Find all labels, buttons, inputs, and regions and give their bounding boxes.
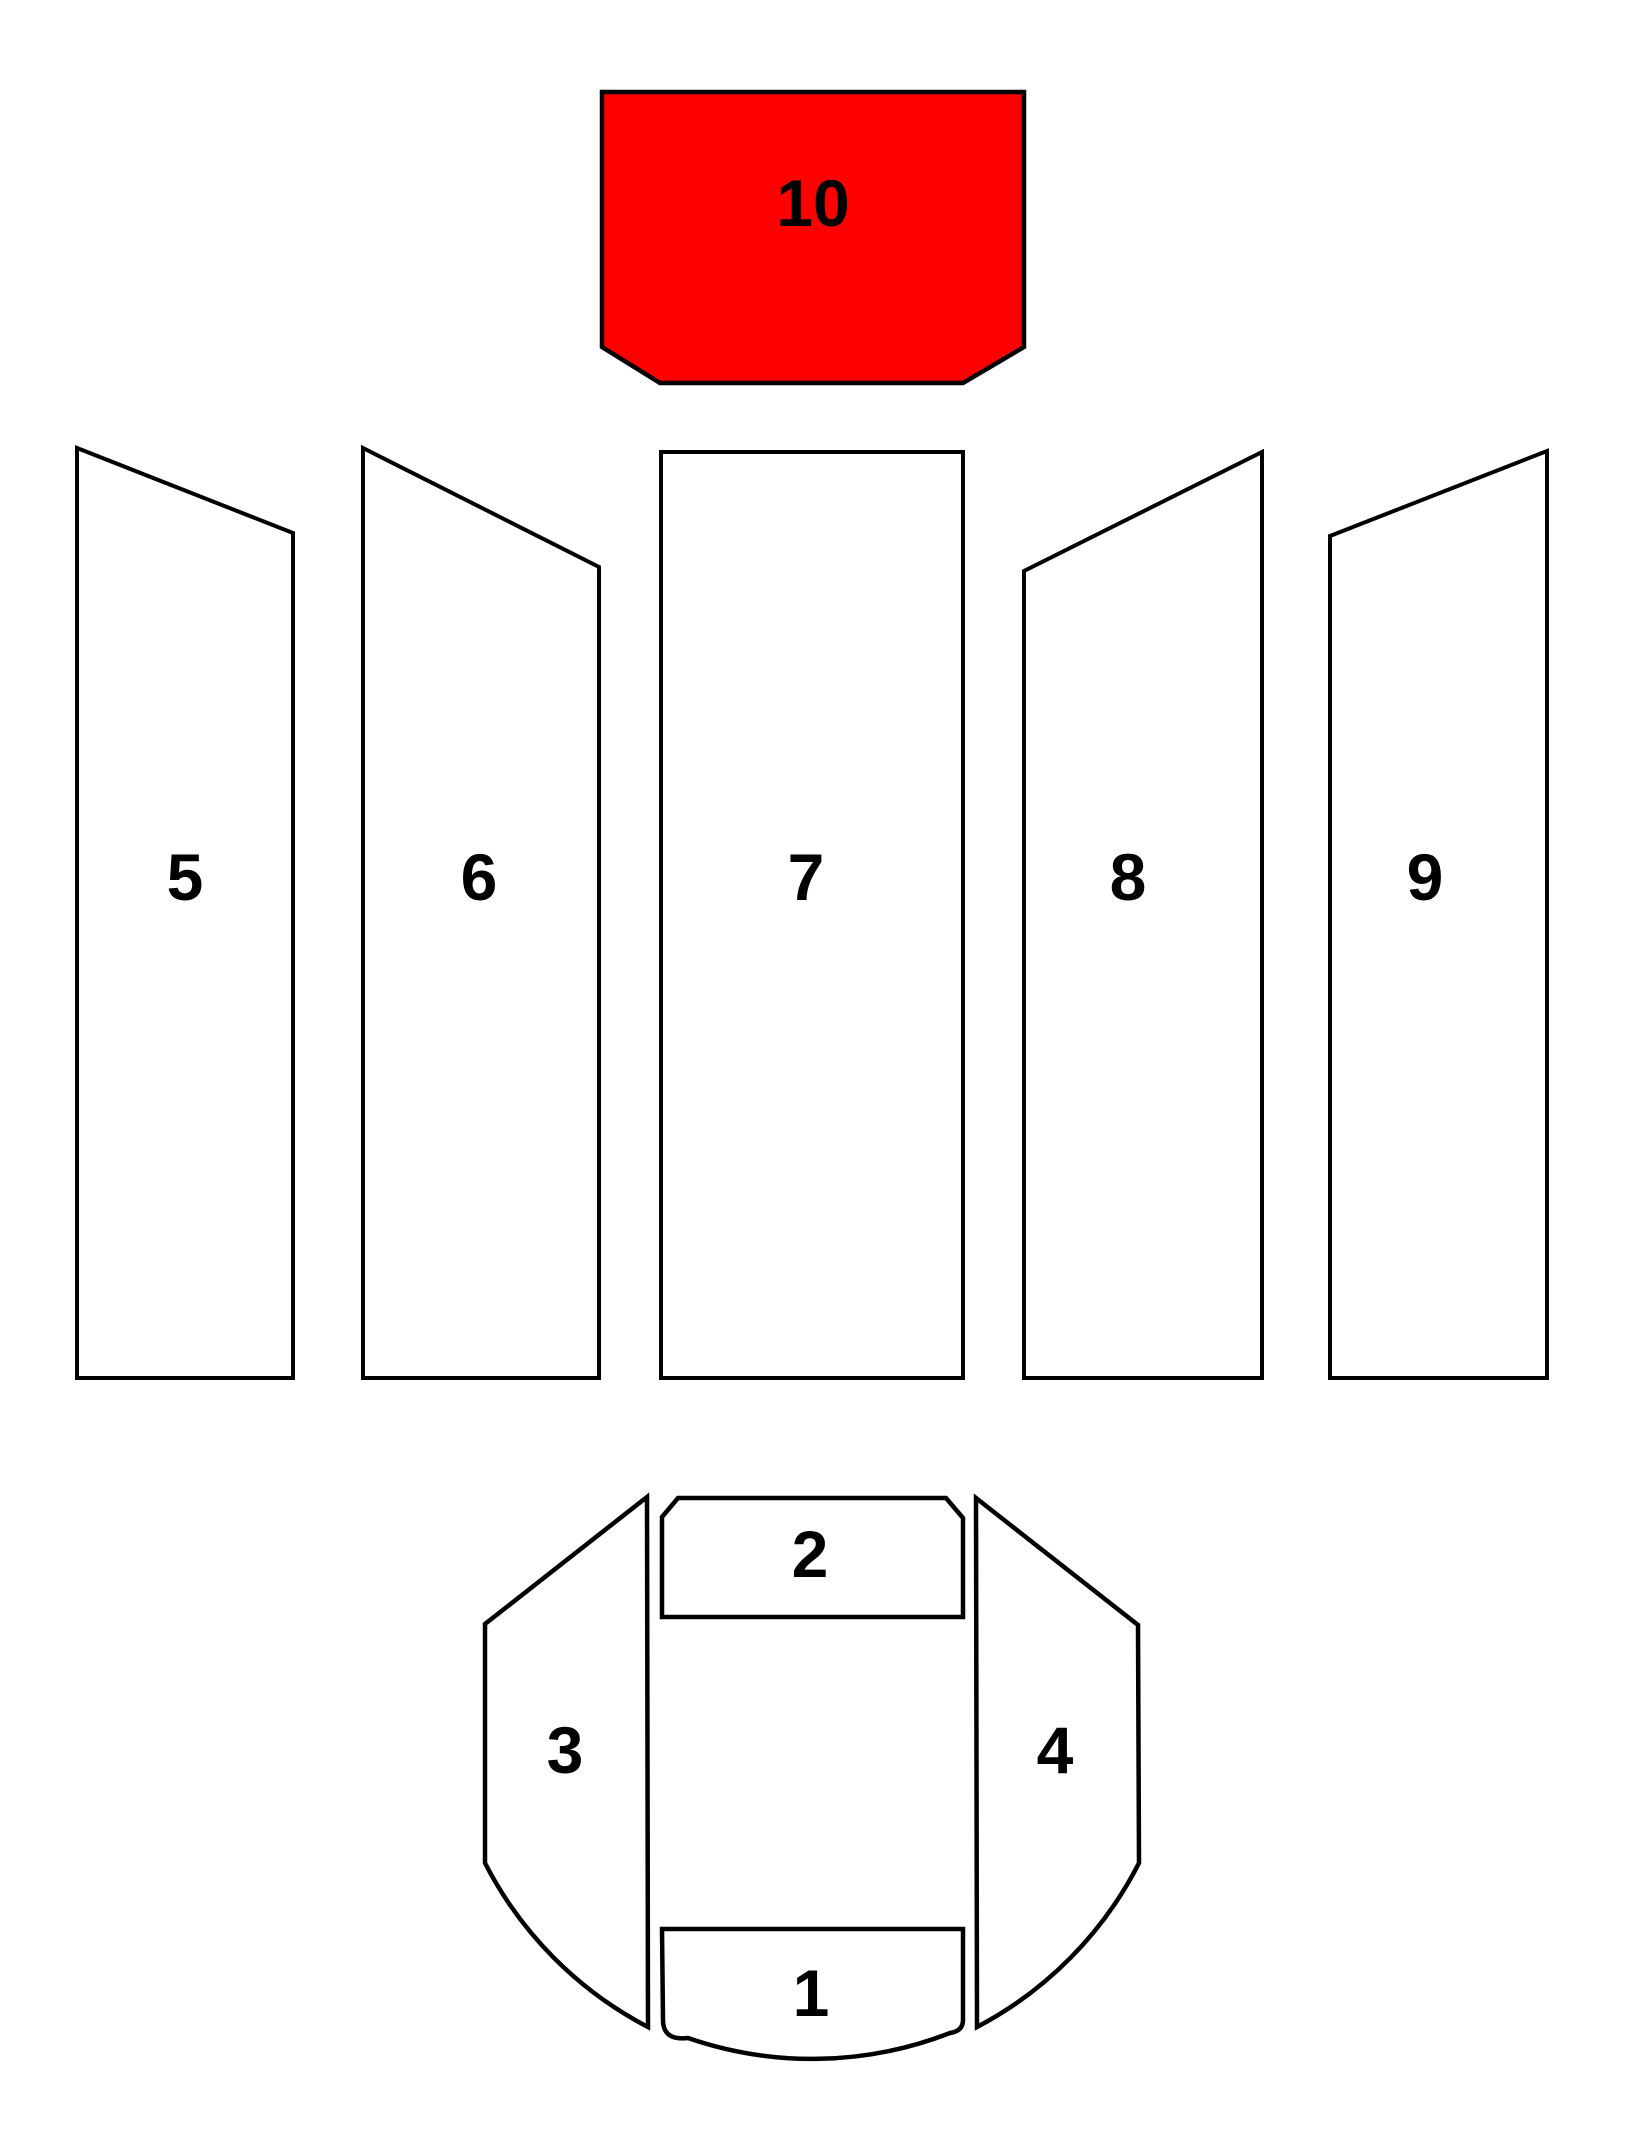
part-2[interactable]: 2 — [662, 1498, 963, 1617]
part-5[interactable]: 5 — [77, 448, 293, 1378]
part-1-label: 1 — [793, 1956, 830, 2030]
part-7-shape[interactable] — [661, 452, 963, 1378]
part-5-label: 5 — [167, 840, 204, 914]
part-8-label: 8 — [1110, 840, 1147, 914]
part-3-label: 3 — [547, 1713, 584, 1787]
part-1[interactable]: 1 — [662, 1929, 963, 2059]
part-8[interactable]: 8 — [1024, 452, 1262, 1378]
part-8-shape[interactable] — [1024, 452, 1262, 1378]
stove-parts-diagram: 10 5 6 7 8 9 2 — [0, 0, 1626, 2136]
part-10-label: 10 — [776, 166, 849, 240]
part-6[interactable]: 6 — [363, 448, 599, 1378]
part-9-shape[interactable] — [1330, 451, 1547, 1378]
part-6-label: 6 — [461, 840, 498, 914]
part-7-label: 7 — [788, 840, 825, 914]
part-3[interactable]: 3 — [485, 1497, 648, 2027]
part-10[interactable]: 10 — [602, 92, 1024, 383]
part-4-label: 4 — [1037, 1713, 1074, 1787]
part-9[interactable]: 9 — [1330, 451, 1547, 1378]
part-4[interactable]: 4 — [976, 1498, 1139, 2027]
part-7[interactable]: 7 — [661, 452, 963, 1378]
part-9-label: 9 — [1407, 840, 1444, 914]
part-2-label: 2 — [792, 1517, 829, 1591]
